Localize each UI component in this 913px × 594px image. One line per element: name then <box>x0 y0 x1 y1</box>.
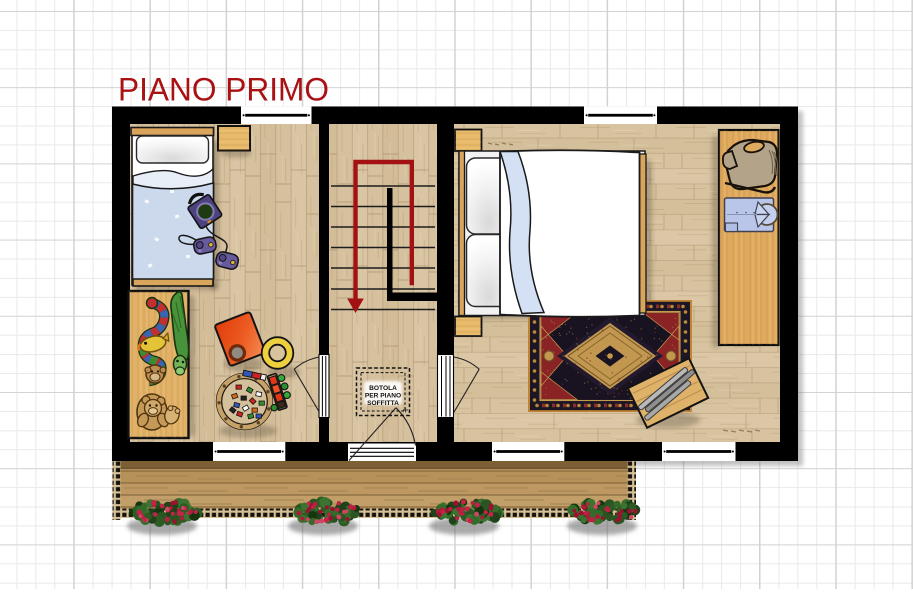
svg-text:PER PIANO: PER PIANO <box>365 393 401 400</box>
svg-text:PIANO PRIMO: PIANO PRIMO <box>118 72 329 108</box>
svg-text:BOTOLA: BOTOLA <box>369 385 397 392</box>
svg-text:SOFFITTA: SOFFITTA <box>367 400 399 407</box>
